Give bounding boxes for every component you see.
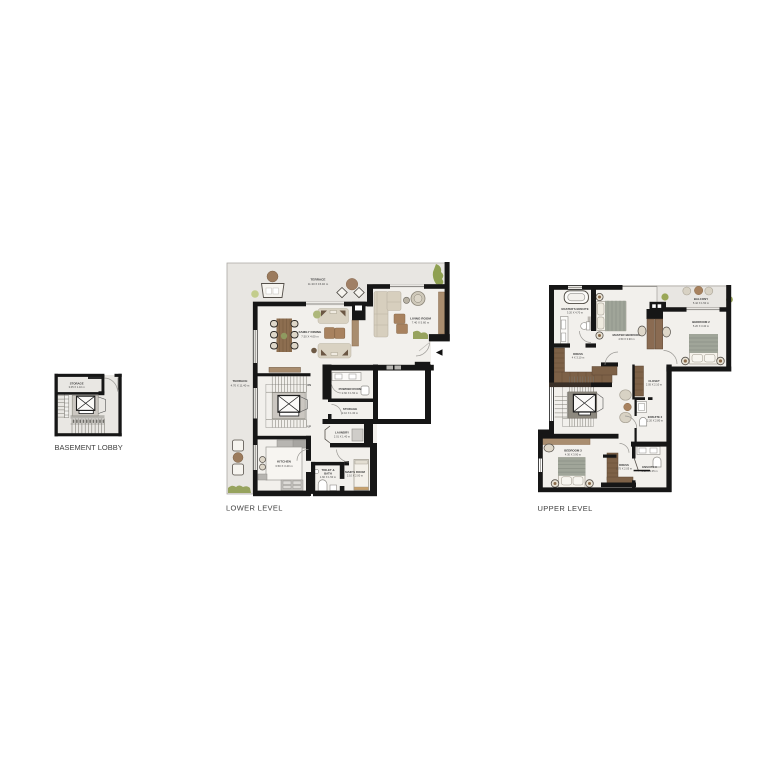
- svg-text:BEDROOM 2: BEDROOM 2: [692, 320, 710, 324]
- svg-text:4.70 X 11.40 m: 4.70 X 11.40 m: [231, 383, 250, 387]
- svg-text:2.20 X 2.80 m: 2.20 X 2.80 m: [647, 419, 663, 423]
- svg-text:2.60 X 1.50 m: 2.60 X 1.50 m: [342, 391, 358, 395]
- svg-text:7.40 X 5.60 m: 7.40 X 5.60 m: [412, 321, 430, 325]
- svg-text:TERRACE: TERRACE: [311, 278, 326, 282]
- svg-text:3.20 X 4.70 m: 3.20 X 4.70 m: [567, 311, 583, 315]
- svg-text:11.30 X 15.40 m: 11.30 X 15.40 m: [308, 282, 329, 286]
- svg-text:LOWER LEVEL: LOWER LEVEL: [226, 504, 283, 513]
- svg-text:KITCHEN: KITCHEN: [277, 460, 292, 464]
- svg-text:TERRACE: TERRACE: [233, 379, 248, 383]
- svg-text:3.05 X 1.10 m: 3.05 X 1.10 m: [69, 385, 85, 389]
- svg-text:4.50 X 3.90 m: 4.50 X 3.90 m: [618, 337, 634, 341]
- svg-text:7.50 X 4.00 m: 7.50 X 4.00 m: [301, 334, 319, 338]
- svg-text:5.20 X 3.40 m: 5.20 X 3.40 m: [693, 324, 709, 328]
- svg-text:BEDROOM 3: BEDROOM 3: [564, 449, 582, 453]
- svg-text:UPPER LEVEL: UPPER LEVEL: [538, 504, 593, 513]
- svg-text:2.01 X 1.40 m: 2.01 X 1.40 m: [334, 434, 350, 438]
- svg-text:4 X 3.10 m: 4 X 3.10 m: [572, 356, 585, 360]
- svg-text:5.42 X 1.50 m: 5.42 X 1.50 m: [693, 301, 709, 305]
- svg-text:2.10 X 1.30 m: 2.10 X 1.30 m: [342, 411, 358, 415]
- svg-text:UP: UP: [308, 425, 312, 428]
- svg-text:BASEMENT LOBBY: BASEMENT LOBBY: [55, 443, 123, 452]
- svg-text:4.30 X 3.90 m: 4.30 X 3.90 m: [565, 452, 581, 456]
- svg-text:DRESS: DRESS: [619, 463, 629, 467]
- svg-text:BALCONY: BALCONY: [694, 297, 708, 301]
- svg-text:ENSUITE 2: ENSUITE 2: [648, 415, 663, 419]
- svg-text:CLOSET: CLOSET: [648, 379, 660, 383]
- svg-text:MASTER'S ENSUITE: MASTER'S ENSUITE: [561, 307, 588, 311]
- svg-text:STORAGE: STORAGE: [70, 381, 84, 385]
- svg-text:2.10 X 2.00 m: 2.10 X 2.00 m: [347, 474, 363, 478]
- svg-text:DRESS: DRESS: [573, 352, 583, 356]
- svg-text:POWDER ROOM: POWDER ROOM: [339, 387, 362, 391]
- svg-text:MAID'S ROOM: MAID'S ROOM: [345, 470, 365, 474]
- svg-text:FAMILY DINING: FAMILY DINING: [299, 330, 322, 334]
- svg-text:2.05 X 2.10 m: 2.05 X 2.10 m: [646, 383, 662, 387]
- svg-text:LAUNDRY: LAUNDRY: [335, 431, 349, 435]
- svg-text:3.50 X 3.40 m: 3.50 X 3.40 m: [275, 464, 293, 468]
- svg-text:BATH: BATH: [324, 472, 332, 476]
- svg-text:STORAGE: STORAGE: [343, 407, 357, 411]
- svg-text:1.60 X 1.50 m: 1.60 X 1.50 m: [320, 475, 336, 479]
- svg-text:ENSUITE 3: ENSUITE 3: [642, 465, 657, 469]
- svg-text:DN: DN: [308, 384, 312, 387]
- svg-text:1.75 X 2.05 m: 1.75 X 2.05 m: [616, 467, 632, 471]
- svg-text:MASTER BEDROOM: MASTER BEDROOM: [612, 333, 641, 337]
